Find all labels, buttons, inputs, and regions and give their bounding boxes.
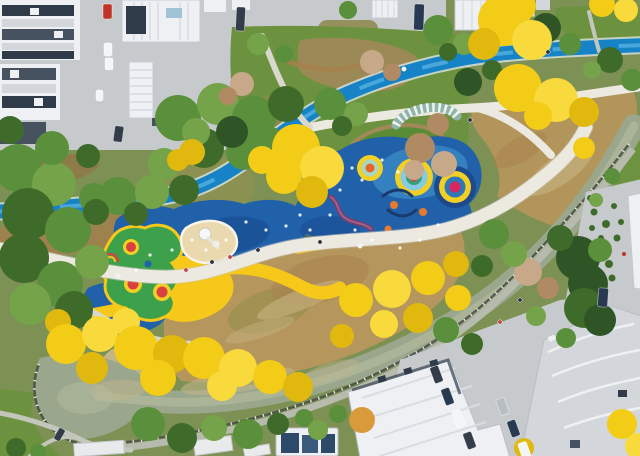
park-scene: Aerial view of riverside park with color… (0, 0, 640, 456)
surface-speckle (398, 246, 401, 249)
tree-canopy (253, 360, 287, 394)
car (105, 58, 113, 70)
tree-canopy (573, 137, 595, 159)
circle-mound-small (357, 155, 383, 181)
tree-canopy (330, 324, 354, 348)
tree-canopy (433, 317, 459, 343)
tree-canopy (405, 133, 435, 163)
surface-speckle (148, 253, 151, 256)
tree-canopy (248, 146, 276, 174)
tree-canopy (296, 176, 328, 208)
tree-canopy (468, 28, 500, 60)
tree-canopy (339, 1, 357, 19)
car (104, 43, 112, 56)
tree-canopy (373, 270, 411, 308)
tree-canopy (471, 255, 493, 277)
surface-speckle (328, 213, 331, 216)
tree-canopy (83, 199, 109, 225)
car (414, 4, 425, 30)
surface-speckle (380, 158, 383, 161)
surface-speckle (204, 248, 207, 251)
surface-speckle (244, 220, 247, 223)
tree-canopy (169, 175, 199, 205)
tree-canopy (431, 151, 457, 177)
tree-canopy (559, 33, 581, 55)
orange-dot (390, 201, 398, 209)
surface-speckle (134, 268, 137, 271)
surface-speckle (350, 166, 353, 169)
tree-canopy (537, 277, 559, 299)
tree-canopy (547, 225, 573, 251)
tree-canopy (404, 160, 424, 180)
person-dot (402, 67, 406, 71)
car (96, 90, 103, 101)
tree-canopy (584, 304, 616, 336)
tree-canopy (461, 333, 483, 355)
tree-canopy (179, 139, 205, 165)
tree-canopy (76, 144, 100, 168)
surface-speckle (436, 223, 439, 226)
tree-canopy (443, 251, 469, 277)
tree-canopy (360, 50, 384, 74)
surface-speckle (190, 238, 193, 241)
tree-canopy (569, 97, 599, 127)
tree-canopy (403, 303, 433, 333)
car (113, 125, 124, 142)
person-dot (210, 260, 214, 264)
tree-canopy (9, 283, 51, 325)
surface-speckle (298, 213, 301, 216)
tree-canopy (370, 310, 398, 338)
tree-canopy (604, 168, 620, 184)
person-dot (184, 268, 188, 272)
surface-speckle (170, 248, 173, 251)
tree-canopy (329, 405, 347, 423)
tree-canopy (247, 33, 269, 55)
person-dot (318, 240, 322, 244)
tree-canopy (140, 360, 176, 396)
tree-canopy (339, 283, 373, 317)
aerial-photo: Aerial view of riverside park with color… (0, 0, 640, 456)
tree-canopy (76, 352, 108, 384)
tree-canopy (583, 61, 601, 79)
person-dot (358, 244, 362, 248)
tree-canopy (35, 131, 69, 165)
person-dot (256, 248, 260, 252)
surface-speckle (418, 238, 421, 241)
tree-canopy (556, 328, 576, 348)
tree-canopy (349, 407, 375, 433)
surface-speckle (396, 170, 399, 173)
person-dot (468, 118, 472, 122)
tree-canopy (479, 219, 509, 249)
surface-speckle (338, 188, 341, 191)
car (597, 288, 608, 308)
tree-canopy (267, 413, 289, 435)
tree-canopy (524, 102, 552, 130)
tree-canopy (216, 116, 248, 148)
tree-canopy (423, 15, 453, 45)
surface-speckle (308, 228, 311, 231)
car (235, 7, 245, 31)
person-dot (546, 50, 550, 54)
person-dot (498, 320, 502, 324)
surface-speckle (224, 238, 227, 241)
tree-canopy (526, 306, 546, 326)
tree-canopy (275, 45, 293, 63)
tree-canopy (201, 415, 227, 441)
tree-canopy (332, 116, 352, 136)
tree-canopy (454, 68, 482, 96)
tree-canopy (308, 420, 328, 440)
person-dot (228, 255, 232, 259)
tree-canopy (75, 245, 109, 279)
tree-canopy (207, 371, 237, 401)
tree-canopy (588, 238, 612, 262)
tree-canopy (439, 43, 457, 61)
tree-canopy (233, 419, 263, 449)
person-dot (116, 274, 120, 278)
tree-canopy (268, 86, 304, 122)
building-row-a (0, 0, 80, 60)
surface-speckle (264, 228, 267, 231)
tree-canopy (411, 261, 445, 295)
tree-canopy (131, 407, 165, 441)
tree-canopy (219, 87, 237, 105)
tree-canopy (445, 285, 471, 311)
tree-canopy (283, 372, 313, 402)
tree-canopy (314, 88, 346, 120)
surface-speckle (284, 224, 287, 227)
tree-canopy (512, 20, 552, 60)
tree-canopy (167, 423, 197, 453)
surface-speckle (353, 228, 356, 231)
orange-dot (419, 208, 427, 216)
tree-canopy (383, 63, 401, 81)
surface-speckle (370, 238, 373, 241)
tree-canopy (589, 193, 603, 207)
tree-canopy (501, 241, 527, 267)
person-dot (518, 298, 522, 302)
surface-speckle (360, 178, 363, 181)
tree-canopy (427, 113, 449, 135)
tree-canopy (124, 202, 148, 226)
car (103, 4, 112, 19)
